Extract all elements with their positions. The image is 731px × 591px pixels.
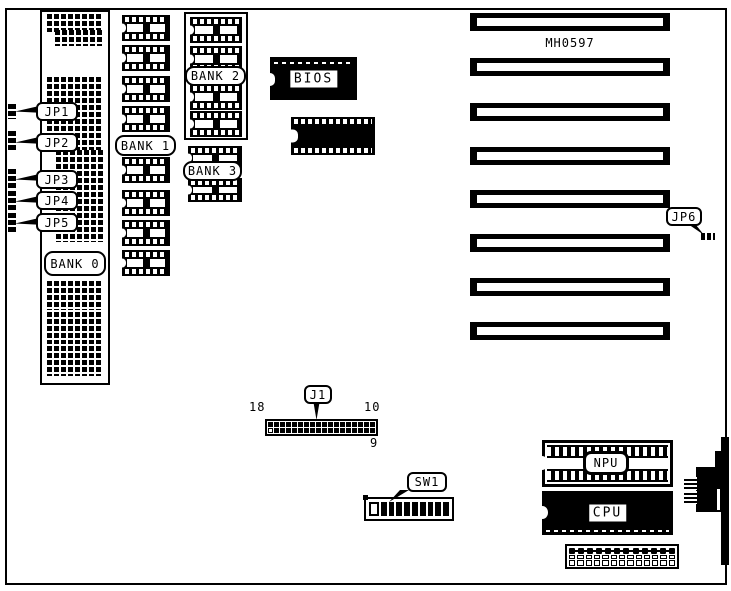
dip-socket bbox=[122, 76, 170, 102]
jp3-label-text: JP3 bbox=[45, 173, 70, 187]
jp5-label-text: JP5 bbox=[45, 216, 70, 230]
bios-label-text: BIOS bbox=[294, 71, 333, 86]
pin1-notch bbox=[291, 130, 298, 143]
board-model-label: MH0597 bbox=[539, 36, 601, 50]
expansion-slot-3 bbox=[470, 103, 670, 121]
bank2-label: BANK 2 bbox=[185, 66, 246, 86]
j1-pin9-label: 9 bbox=[370, 436, 378, 450]
jp3-label: JP3 bbox=[36, 170, 78, 189]
expansion-slot-4 bbox=[470, 147, 670, 165]
sw1-label: SW1 bbox=[407, 472, 447, 492]
dip-socket bbox=[122, 157, 170, 183]
jumper-jp5 bbox=[8, 213, 16, 234]
jumper-jp1 bbox=[8, 104, 16, 119]
jumper-jp2 bbox=[8, 131, 16, 152]
sw1-label-text: SW1 bbox=[415, 475, 440, 489]
dip-socket bbox=[190, 17, 242, 43]
pin1-notch bbox=[122, 199, 126, 208]
dip-socket bbox=[122, 15, 170, 41]
bios-pin-stripe bbox=[274, 62, 353, 64]
dip-socket bbox=[122, 250, 170, 276]
jp1-label-text: JP1 bbox=[45, 105, 70, 119]
rom-chip bbox=[291, 117, 375, 155]
j1-pin18-text: 18 bbox=[249, 400, 265, 414]
cpu-label-text: CPU bbox=[593, 506, 622, 521]
jumper-jp3 bbox=[8, 169, 16, 190]
pin1-notch bbox=[122, 259, 126, 268]
bank3-label: BANK 3 bbox=[183, 161, 242, 181]
jp4-label-text: JP4 bbox=[45, 194, 70, 208]
motherboard-diagram: BANK 0 JP1 JP2 JP3 JP4 JP5 BANK 1 BANK 2… bbox=[0, 0, 731, 591]
npu-notch bbox=[536, 456, 548, 470]
bank1-label: BANK 1 bbox=[115, 135, 176, 156]
pin1-notch bbox=[122, 166, 126, 175]
pin1-notch bbox=[122, 54, 126, 63]
dram-chip-grid bbox=[47, 346, 103, 376]
power-bottom-row bbox=[569, 560, 675, 566]
dip-socket bbox=[122, 190, 170, 216]
pin1-notch bbox=[190, 120, 194, 129]
keyboard-connector-step bbox=[715, 451, 723, 467]
expansion-slot-8 bbox=[470, 322, 670, 340]
j1-pin18-label: 18 bbox=[249, 400, 265, 414]
j1-pin10-label: 10 bbox=[364, 400, 380, 414]
bank0-label: BANK 0 bbox=[44, 251, 106, 276]
jp6-label: JP6 bbox=[666, 207, 702, 226]
j1-label-text: J1 bbox=[310, 388, 326, 402]
pin1-notch bbox=[122, 115, 126, 124]
j1-pin-header bbox=[265, 419, 378, 436]
pin1-notch bbox=[188, 186, 192, 195]
dip-socket bbox=[122, 106, 170, 132]
jp2-label: JP2 bbox=[36, 133, 78, 152]
jp5-label: JP5 bbox=[36, 213, 78, 232]
dram-chip-grid bbox=[47, 312, 103, 344]
dip-socket bbox=[122, 45, 170, 71]
dram-chip-grid bbox=[55, 30, 103, 46]
expansion-slot-1 bbox=[470, 13, 670, 31]
bios-label: BIOS bbox=[290, 70, 337, 87]
bank3-label-text: BANK 3 bbox=[188, 164, 237, 178]
cpu-chip: CPU bbox=[542, 491, 673, 535]
board-model-text: MH0597 bbox=[545, 36, 594, 50]
cpu-label: CPU bbox=[589, 505, 626, 522]
bank2-label-text: BANK 2 bbox=[191, 69, 240, 83]
dip-socket bbox=[122, 220, 170, 246]
bios-chip: BIOS bbox=[270, 57, 357, 100]
j1-label: J1 bbox=[304, 385, 332, 404]
jp2-label-text: JP2 bbox=[45, 136, 70, 150]
jp1-label: JP1 bbox=[36, 102, 78, 121]
keyboard-plug-2 bbox=[684, 491, 697, 504]
bank0-label-text: BANK 0 bbox=[50, 257, 99, 271]
cpu-pin-stripe bbox=[546, 530, 669, 532]
dip-socket bbox=[190, 111, 242, 137]
bank1-label-text: BANK 1 bbox=[121, 139, 170, 153]
expansion-slot-6 bbox=[470, 234, 670, 252]
dip-socket bbox=[188, 178, 242, 202]
pin1-notch bbox=[122, 24, 126, 33]
dram-chip-grid bbox=[47, 281, 103, 310]
dip-switch-sw1 bbox=[364, 497, 454, 521]
sw1-corner-dot bbox=[363, 495, 368, 500]
keyboard-connector-slit bbox=[717, 489, 720, 510]
expansion-slot-2 bbox=[470, 58, 670, 76]
keyboard-plug-1 bbox=[684, 477, 697, 490]
power-pin-row bbox=[569, 547, 675, 554]
pin1-notch bbox=[190, 93, 194, 102]
bios-notch bbox=[270, 73, 275, 86]
power-mid-row bbox=[569, 555, 675, 559]
jp4-label: JP4 bbox=[36, 191, 78, 210]
expansion-slot-7 bbox=[470, 278, 670, 296]
pin1-notch bbox=[122, 229, 126, 238]
pin1-notch bbox=[190, 26, 194, 35]
npu-label: NPU bbox=[583, 451, 629, 475]
jp6-label-text: JP6 bbox=[672, 210, 697, 224]
npu-label-text: NPU bbox=[594, 456, 619, 470]
power-connector bbox=[565, 544, 679, 569]
j1-pin10-text: 10 bbox=[364, 400, 380, 414]
pin1-notch bbox=[190, 55, 194, 64]
expansion-slot-5 bbox=[470, 190, 670, 208]
j1-pin9-text: 9 bbox=[370, 436, 378, 450]
cpu-notch bbox=[537, 506, 548, 519]
pin1-notch bbox=[122, 85, 126, 94]
dip-socket bbox=[190, 84, 242, 110]
jumper-jp4 bbox=[8, 191, 16, 212]
